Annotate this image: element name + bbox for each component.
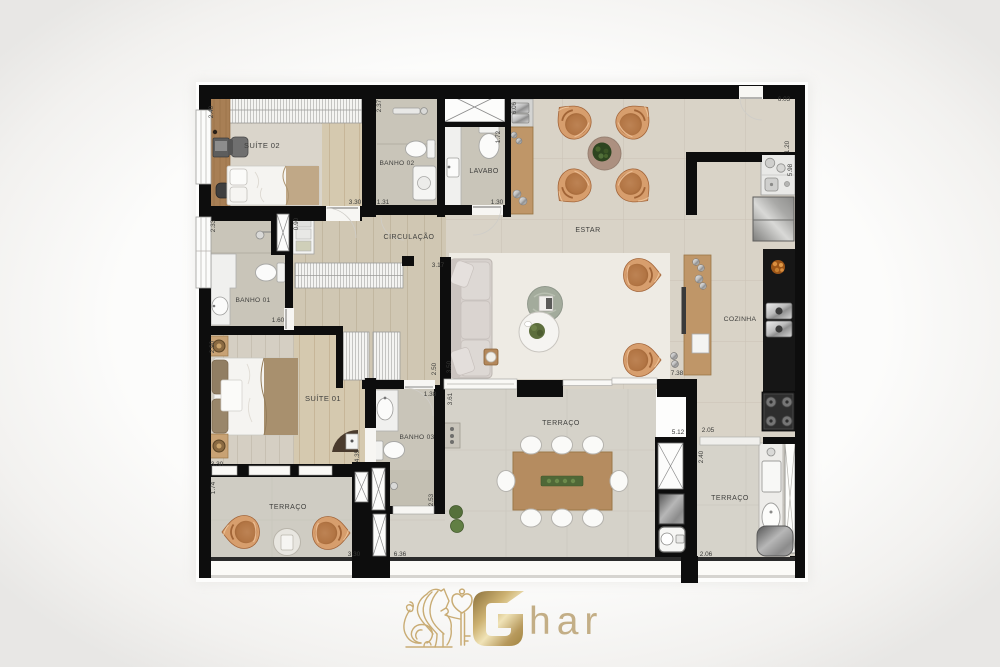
svg-text:BANHO 03: BANHO 03 bbox=[399, 434, 434, 441]
svg-text:2.05: 2.05 bbox=[702, 427, 715, 434]
svg-text:6.36: 6.36 bbox=[394, 551, 407, 558]
svg-text:5.12: 5.12 bbox=[672, 429, 685, 436]
svg-text:4.35: 4.35 bbox=[354, 449, 361, 462]
svg-text:har: har bbox=[529, 600, 603, 643]
svg-text:2.06: 2.06 bbox=[700, 551, 713, 558]
svg-text:2.50: 2.50 bbox=[431, 362, 438, 375]
svg-text:SUÍTE 01: SUÍTE 01 bbox=[305, 394, 341, 403]
svg-text:CIRCULAÇÃO: CIRCULAÇÃO bbox=[384, 232, 435, 241]
svg-text:6.06: 6.06 bbox=[511, 101, 518, 114]
svg-text:1.31: 1.31 bbox=[377, 199, 390, 206]
svg-text:3.30: 3.30 bbox=[349, 199, 362, 206]
svg-text:SUÍTE 02: SUÍTE 02 bbox=[244, 141, 280, 150]
svg-text:5.98: 5.98 bbox=[787, 163, 794, 176]
svg-text:1.74: 1.74 bbox=[210, 481, 217, 494]
svg-text:ESTAR: ESTAR bbox=[575, 227, 600, 234]
svg-text:COZINHA: COZINHA bbox=[724, 316, 757, 323]
svg-text:BANHO 02: BANHO 02 bbox=[379, 160, 414, 167]
svg-text:6.03: 6.03 bbox=[778, 96, 791, 103]
svg-text:2.53: 2.53 bbox=[428, 493, 435, 506]
svg-text:3.17: 3.17 bbox=[432, 262, 445, 269]
svg-text:2.40: 2.40 bbox=[698, 450, 705, 463]
svg-text:1.30: 1.30 bbox=[491, 199, 504, 206]
svg-text:3.61: 3.61 bbox=[447, 392, 454, 405]
svg-text:1.72: 1.72 bbox=[495, 130, 502, 143]
svg-text:TERRAÇO: TERRAÇO bbox=[269, 504, 307, 511]
svg-text:2.40: 2.40 bbox=[208, 105, 215, 118]
svg-text:1.60: 1.60 bbox=[272, 317, 285, 324]
svg-text:BANHO 01: BANHO 01 bbox=[235, 297, 270, 304]
svg-text:3.50: 3.50 bbox=[446, 360, 453, 373]
svg-text:7.38: 7.38 bbox=[671, 370, 684, 377]
svg-text:2.90: 2.90 bbox=[209, 340, 216, 353]
svg-text:3.30: 3.30 bbox=[211, 461, 224, 468]
svg-text:0.90: 0.90 bbox=[293, 217, 300, 230]
svg-text:TERRAÇO: TERRAÇO bbox=[542, 420, 580, 427]
svg-text:TERRAÇO: TERRAÇO bbox=[711, 495, 749, 502]
svg-text:2.33: 2.33 bbox=[210, 219, 217, 232]
svg-text:LAVABO: LAVABO bbox=[469, 168, 499, 175]
svg-text:2.37: 2.37 bbox=[376, 99, 383, 112]
svg-text:1.20: 1.20 bbox=[784, 140, 791, 153]
svg-text:3.30: 3.30 bbox=[348, 551, 361, 558]
svg-text:1.38: 1.38 bbox=[424, 391, 437, 398]
